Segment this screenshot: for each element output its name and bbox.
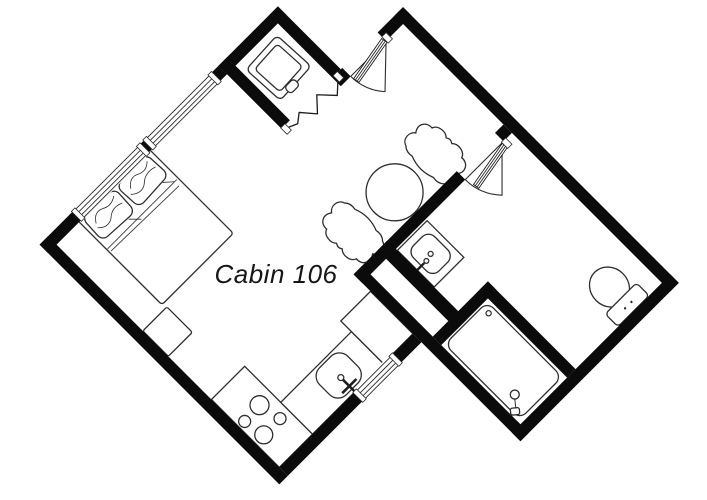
double-bed [76, 148, 233, 305]
plan-title: Cabin 106 [214, 259, 337, 289]
bathroom-door [465, 138, 533, 206]
bedroom-window-upper [142, 71, 221, 150]
rotated-plan [39, 0, 679, 500]
floor-plan-drawing: Cabin 106 [0, 0, 707, 500]
entry-door [346, 33, 415, 102]
floor-plan-page: Cabin 106 [0, 0, 707, 500]
